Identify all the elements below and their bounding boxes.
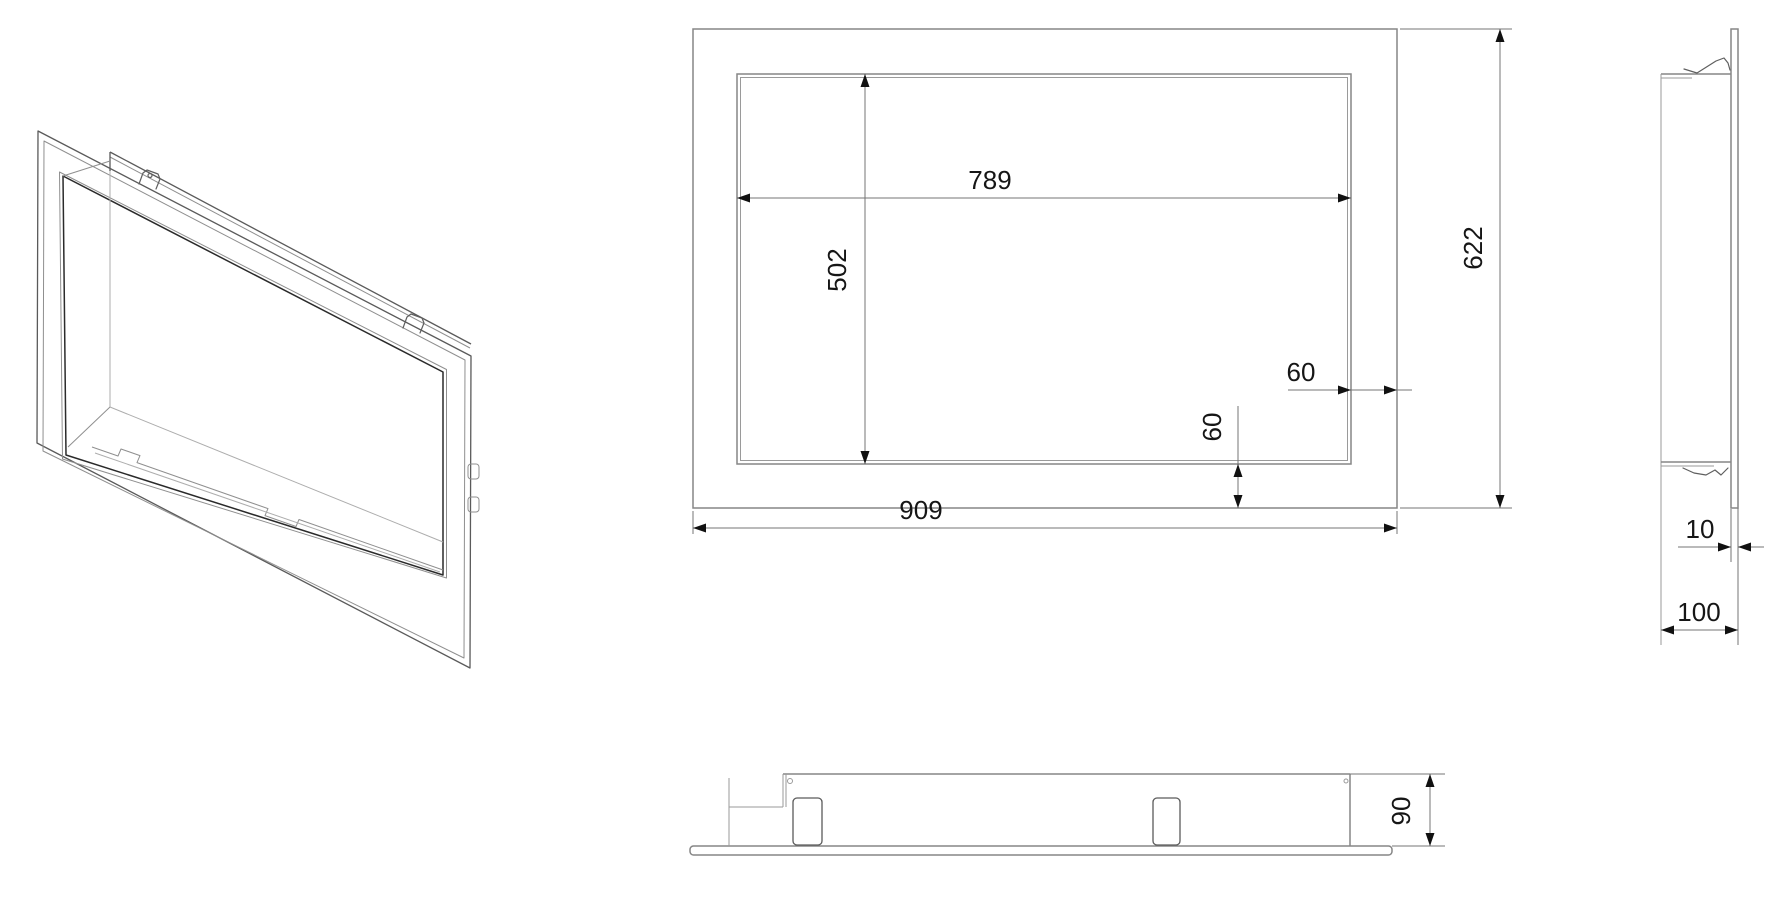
dim-overall-width: 909 [693, 495, 1397, 534]
dim-label-909: 909 [899, 495, 942, 525]
dim-label-502: 502 [822, 248, 852, 291]
isometric-view [37, 131, 479, 668]
iso-window-opening [63, 176, 443, 575]
bottom-hole-right [1344, 779, 1348, 783]
dim-offset-bottom: 60 [1197, 406, 1243, 508]
iso-side-tab-2 [468, 497, 479, 512]
dim-label-10: 10 [1686, 514, 1715, 544]
technical-drawing-page: 789 502 60 60 [0, 0, 1788, 905]
bottom-flange-strip [690, 846, 1392, 855]
bottom-foot-left [793, 798, 822, 845]
iso-box-top-edge-2 [110, 157, 470, 348]
dim-label-60-bottom: 60 [1197, 413, 1227, 442]
front-view: 789 502 60 60 [693, 29, 1512, 534]
side-bottom-clip [1683, 468, 1728, 475]
dim-total-depth: 100 [1661, 597, 1738, 635]
dim-label-789: 789 [968, 165, 1011, 195]
dim-overall-height: 622 [1400, 29, 1512, 508]
bottom-view: 90 [690, 774, 1445, 855]
dim-opening-height: 502 [822, 74, 870, 464]
side-plate [1731, 29, 1738, 508]
dim-opening-width: 789 [737, 165, 1351, 203]
dim-body-height: 90 [1350, 774, 1445, 846]
iso-bottom-notched-edge [92, 447, 443, 570]
dim-label-90: 90 [1386, 797, 1416, 826]
dim-label-622: 622 [1458, 226, 1488, 269]
front-outer-rect [693, 29, 1397, 508]
bottom-foot-right [1153, 798, 1180, 845]
dim-label-100: 100 [1677, 597, 1720, 627]
side-top-clip [1684, 58, 1730, 73]
dim-offset-right: 60 [1287, 357, 1412, 395]
iso-clip-hole [148, 174, 152, 178]
iso-side-tab-1 [468, 464, 479, 479]
iso-wall-bottom-edge [68, 407, 110, 447]
iso-flange-fold [43, 141, 465, 658]
dim-label-60-right: 60 [1287, 357, 1316, 387]
side-view: 10 100 [1661, 29, 1764, 645]
bottom-hole-left [788, 779, 793, 784]
iso-box-top-edge [110, 152, 471, 344]
technical-drawing-canvas: 789 502 60 60 [0, 0, 1788, 905]
iso-flange-outer [37, 131, 471, 668]
